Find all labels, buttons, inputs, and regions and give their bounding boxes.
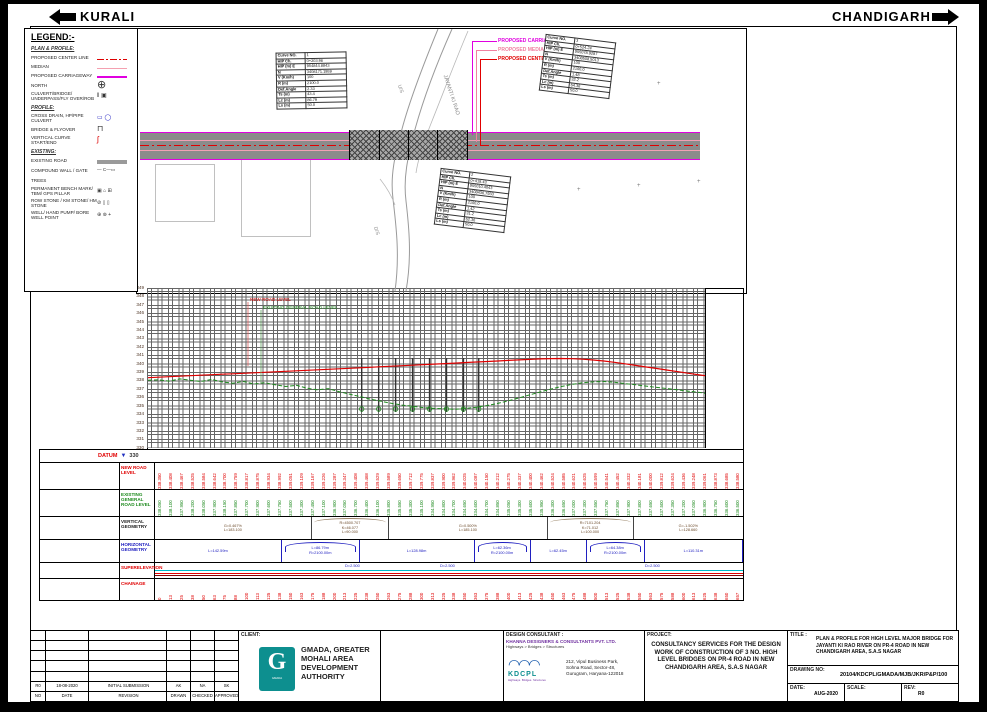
level-value: 339.061 bbox=[700, 463, 711, 489]
vg-label: L=90.000 bbox=[342, 530, 358, 534]
drawing-title-cell: TITLE : PLAN & PROFILE FOR HIGH LEVEL MA… bbox=[788, 631, 958, 666]
level-value: 335.300 bbox=[515, 490, 526, 516]
existing-level-row: EXISTING GENERAL ROAD LEVEL 338.050338.1… bbox=[40, 490, 743, 517]
callout-leader bbox=[472, 41, 497, 42]
level-value: 337.350 bbox=[668, 490, 679, 516]
carriageway-icon bbox=[97, 76, 127, 78]
client-cell: CLIENT: G GMADA GMADA, GREATER MOHALI AR… bbox=[239, 631, 381, 701]
level-value: 340.400 bbox=[526, 463, 537, 489]
superelevation-value: D=2.500 bbox=[645, 563, 660, 568]
level-value: 339.436 bbox=[679, 463, 690, 489]
drawing-no-cell: DRAWING NO: 20104/KDCPL/GMADA/MJB/JKR/P&… bbox=[788, 666, 958, 684]
level-value: 337.650 bbox=[646, 490, 657, 516]
horizontal-geometry-segment: L=62.36m R=2100.00m bbox=[475, 540, 531, 562]
existing-level-values: 338.050338.100337.950338.200338.050337.9… bbox=[155, 490, 743, 516]
crossdrain-icon bbox=[97, 114, 127, 122]
level-value: 340.625 bbox=[580, 463, 591, 489]
legend-section-title: EXISTING: bbox=[31, 149, 137, 155]
callout-proposed-median: PROPOSED MEDIAN bbox=[498, 47, 547, 53]
chainage-value: 375 bbox=[482, 579, 493, 600]
revision-row-r0: R0 18-08-2020 INITIAL SUBMISSION AK NA S… bbox=[31, 682, 238, 692]
level-value: 339.109 bbox=[297, 463, 308, 489]
level-value: 340.025 bbox=[460, 463, 471, 489]
chainage-value: 313 bbox=[428, 579, 439, 600]
level-value: 334.950 bbox=[428, 490, 439, 516]
survey-plus-mark: + bbox=[657, 81, 661, 87]
chainage-value: 113 bbox=[253, 579, 264, 600]
horizontal-geometry-segment: L=128.98m bbox=[360, 540, 475, 562]
level-value: 337.700 bbox=[242, 490, 253, 516]
level-value: 337.950 bbox=[177, 490, 188, 516]
level-value: 339.712 bbox=[406, 463, 417, 489]
rev-value: R0 bbox=[918, 691, 924, 697]
level-value: 339.962 bbox=[449, 463, 460, 489]
bridge-pier-line bbox=[379, 130, 380, 160]
legend-item-label: PROPOSED CARRIAGEWAY bbox=[31, 73, 97, 78]
legend-items: EXISTING ROADCOMPOUND WALL / GATETREESPE… bbox=[25, 157, 137, 220]
legend-item: ROW STONE / KM STONE/ HM STONE bbox=[31, 198, 137, 208]
level-value: 338.817 bbox=[242, 463, 253, 489]
level-value: 335.550 bbox=[395, 490, 406, 516]
curve-data-table-2: Curve NO.2HIP Ch.0+418.43HIP (m) E955010… bbox=[434, 168, 511, 233]
level-value: 335.100 bbox=[417, 490, 428, 516]
client-name: GMADA, GREATER MOHALI AREA DEVELOPMENT A… bbox=[301, 645, 373, 681]
bridge-piers bbox=[359, 358, 480, 412]
arrow-left-icon bbox=[60, 13, 76, 21]
legend-item: VERTICAL CURVE START/END bbox=[31, 135, 137, 145]
level-value: 340.337 bbox=[515, 463, 526, 489]
bridge-pier-line bbox=[408, 130, 409, 160]
legend-item-label: CULVERT/BRIDGE/ UNDERPASS/FLY OVER/ROB bbox=[31, 91, 97, 101]
level-value: 337.600 bbox=[264, 490, 275, 516]
level-value: 340.462 bbox=[537, 463, 548, 489]
chainage-value: 88 bbox=[231, 579, 242, 600]
client-heading: CLIENT: bbox=[241, 632, 380, 638]
vg-label: R=4500.707 bbox=[340, 521, 361, 525]
chainage-value: 625 bbox=[700, 579, 711, 600]
design-consultant-cell: DESIGN CONSULTANT : KHANNA DESIGNERS & C… bbox=[504, 631, 645, 701]
level-value: 334.850 bbox=[493, 490, 504, 516]
level-value: 339.589 bbox=[384, 463, 395, 489]
date-value: AUG-2020 bbox=[814, 691, 838, 697]
vg-label: R=7101.204 bbox=[580, 521, 601, 525]
design-consultant-tagline: Highways > Bridges > Structures bbox=[506, 644, 644, 649]
level-value: 337.450 bbox=[308, 490, 319, 516]
row-label-chainage: CHAINAGE bbox=[119, 579, 155, 600]
vg-label: L=128.660 bbox=[679, 528, 697, 532]
level-value: 338.525 bbox=[188, 463, 199, 489]
median-icon bbox=[97, 68, 127, 69]
datum-row: DATUM ▼ 330 bbox=[40, 450, 743, 463]
vg-label: L=185.100 bbox=[459, 528, 477, 532]
legend-item: MEDIAN bbox=[31, 63, 137, 70]
row-label-superelevation: SUPERELEVATION bbox=[119, 563, 155, 578]
legend-panel: LEGEND:- PLAN & PROFILE: PROPOSED CENTER… bbox=[24, 28, 138, 292]
superelevation-line-red bbox=[155, 573, 743, 574]
chainage-value: 388 bbox=[493, 579, 504, 600]
level-value: 337.850 bbox=[231, 490, 242, 516]
level-value: 339.775 bbox=[417, 463, 428, 489]
stamp-cell bbox=[381, 631, 504, 701]
chainage-value: 188 bbox=[319, 579, 330, 600]
bridge-icon bbox=[97, 125, 127, 133]
level-value: 337.300 bbox=[297, 490, 308, 516]
survey-plus-mark: + bbox=[577, 187, 581, 193]
existing-road-icon bbox=[97, 160, 127, 164]
plan-parcel-outline bbox=[241, 159, 311, 237]
chainage-value: 163 bbox=[297, 579, 308, 600]
horizontal-geometry-segment: L=110.31m bbox=[645, 540, 743, 562]
level-value: 336.900 bbox=[330, 490, 341, 516]
level-value: 339.624 bbox=[668, 463, 679, 489]
legend-title: LEGEND:- bbox=[31, 32, 137, 42]
chainage-value: 425 bbox=[526, 579, 537, 600]
legend-item-label: VERTICAL CURVE START/END bbox=[31, 135, 97, 145]
level-value: 338.050 bbox=[155, 490, 166, 516]
level-value: 337.750 bbox=[602, 490, 613, 516]
legend-item-label: BRIDGE & FLYOVER bbox=[31, 127, 97, 132]
superelevation-line-cyan bbox=[155, 570, 743, 571]
chainage-value: 238 bbox=[362, 579, 373, 600]
bridge-pier-line bbox=[437, 130, 438, 160]
new-road-level-line bbox=[148, 359, 705, 378]
frame-top-line bbox=[30, 26, 957, 27]
chainage-value: 350 bbox=[460, 579, 471, 600]
hg-label: R=2100.00m bbox=[604, 551, 626, 556]
horizontal-geometry-segment: L=142.59m bbox=[155, 540, 282, 562]
date-scale-rev-row: DATE: AUG-2020 SCALE: REV: R0 bbox=[788, 684, 958, 701]
legend-item: PROPOSED CARRIAGEWAY bbox=[31, 72, 137, 79]
level-value: 340.000 bbox=[646, 463, 657, 489]
level-value: 338.700 bbox=[220, 463, 231, 489]
horizontal-geometry-segment: L=62.45m bbox=[531, 540, 587, 562]
level-value: 338.150 bbox=[220, 490, 231, 516]
level-value: 339.529 bbox=[373, 463, 384, 489]
direction-right-label: CHANDIGARH bbox=[832, 9, 931, 24]
chainage-value: 400 bbox=[504, 579, 515, 600]
project-description: CONSULTANCY SERVICES FOR THE DESIGN WORK… bbox=[647, 642, 785, 672]
legend-section: PROFILE: CROSS DRAIN, HP/PIPE CULVERTBRI… bbox=[25, 105, 137, 145]
chainage-value: 463 bbox=[559, 579, 570, 600]
chainage-value: 38 bbox=[188, 579, 199, 600]
design-consultant-address: 212, Vipul Business Park, Sohna Road, Se… bbox=[566, 659, 642, 677]
chainage-value: 657 bbox=[733, 579, 743, 600]
level-value: 337.900 bbox=[624, 490, 635, 516]
chainage-value: 225 bbox=[351, 579, 362, 600]
callout-leader bbox=[480, 59, 497, 60]
date-cell: DATE: AUG-2020 bbox=[788, 684, 845, 701]
level-value: 336.700 bbox=[351, 490, 362, 516]
vertical-geometry-segment: G=-1.502% L=128.660 bbox=[634, 517, 743, 539]
new-road-level-row: NEW ROAD LEVEL 338.350338.408338.467338.… bbox=[40, 463, 743, 490]
chainage-value: 600 bbox=[679, 579, 690, 600]
vertical-geometry-row: VERTICAL GEOMETRY G=0.467% L=183.100 R=4… bbox=[40, 517, 743, 540]
level-value: 335.050 bbox=[504, 490, 515, 516]
chainage-value: 538 bbox=[624, 579, 635, 600]
existing-ground-line bbox=[148, 379, 705, 409]
legend-item-label: ROW STONE / KM STONE/ HM STONE bbox=[31, 198, 97, 208]
centerline-icon bbox=[97, 59, 127, 60]
project-heading: PROJECT: bbox=[647, 632, 787, 638]
legend-item: COMPOUND WALL / GATE bbox=[31, 166, 137, 174]
legend-item: WELL/ HAND PUMP/ BORE WELL POINT bbox=[31, 210, 137, 220]
level-value: 340.212 bbox=[493, 463, 504, 489]
level-value: 340.524 bbox=[548, 463, 559, 489]
level-value: 338.580 bbox=[733, 463, 743, 489]
superelevation-value: D=2.500 bbox=[345, 563, 360, 568]
level-value: 340.150 bbox=[482, 463, 493, 489]
level-value: 340.599 bbox=[591, 463, 602, 489]
legend-item: PROPOSED CENTER LINE bbox=[31, 54, 137, 61]
chainage-row: CHAINAGE 0132538506375881001131251381501… bbox=[40, 579, 743, 600]
chainage-value: 25 bbox=[177, 579, 188, 600]
vg-label: L=183.100 bbox=[224, 528, 242, 532]
legend-section-title: PLAN & PROFILE: bbox=[31, 46, 137, 52]
revision-table: R0 18-08-2020 INITIAL SUBMISSION AK NA S… bbox=[31, 631, 239, 701]
legend-item-label: NORTH bbox=[31, 83, 97, 88]
level-value: 340.621 bbox=[569, 463, 580, 489]
level-value: 338.875 bbox=[253, 463, 264, 489]
hg-label: L=62.45m bbox=[549, 549, 566, 554]
arrow-right-icon bbox=[932, 13, 948, 21]
level-value: 337.300 bbox=[580, 490, 591, 516]
title-block: R0 18-08-2020 INITIAL SUBMISSION AK NA S… bbox=[30, 630, 959, 702]
profile-plot bbox=[140, 288, 750, 448]
horizontal-geometry-segment: L=86.79m R=2100.00m bbox=[282, 540, 360, 562]
level-value: 334.650 bbox=[460, 490, 471, 516]
legend-item: TREES bbox=[31, 176, 137, 184]
level-value: 339.347 bbox=[340, 463, 351, 489]
legend-item: PERMANENT BENCH MARK/ TBM/ GPS PILLAR bbox=[31, 186, 137, 196]
vg-label: L=100.000 bbox=[581, 530, 599, 534]
level-value: 338.050 bbox=[199, 490, 210, 516]
legend-section: EXISTING: EXISTING ROADCOMPOUND WALL / G… bbox=[25, 149, 137, 220]
vertical-geometry-segment: G=0.467% L=183.100 bbox=[155, 517, 311, 539]
chainage-value: 288 bbox=[406, 579, 417, 600]
survey-plus-mark: + bbox=[697, 179, 701, 185]
level-value: 334.800 bbox=[439, 490, 450, 516]
level-value: 339.051 bbox=[286, 463, 297, 489]
chainage-value: 63 bbox=[210, 579, 221, 600]
superelevation-value: D=2.500 bbox=[440, 563, 455, 568]
level-value: 338.350 bbox=[155, 463, 166, 489]
chainage-value: 575 bbox=[657, 579, 668, 600]
chainage-value: 488 bbox=[580, 579, 591, 600]
level-value: 336.100 bbox=[373, 490, 384, 516]
curve-data-table-1: Curve NO.1HIP Ch.0+203.96HIP (m) E954844… bbox=[276, 51, 348, 109]
level-value: 336.400 bbox=[362, 490, 373, 516]
chainage-value: 550 bbox=[635, 579, 646, 600]
chainage-value: 213 bbox=[340, 579, 351, 600]
project-cell: PROJECT: CONSULTANCY SERVICES FOR THE DE… bbox=[645, 631, 788, 701]
chainage-value: 138 bbox=[275, 579, 286, 600]
design-consultant-heading: DESIGN CONSULTANT : bbox=[506, 632, 644, 638]
legend-item-label: COMPOUND WALL / GATE bbox=[31, 168, 97, 173]
pbm-icon bbox=[97, 187, 127, 195]
level-value: 339.812 bbox=[657, 463, 668, 489]
bridge-deck-hatch bbox=[349, 130, 468, 160]
chainage-value: 0 bbox=[155, 579, 166, 600]
level-value: 338.584 bbox=[199, 463, 210, 489]
level-value: 339.408 bbox=[351, 463, 362, 489]
level-value: 337.750 bbox=[275, 490, 286, 516]
well-icon bbox=[97, 211, 127, 219]
level-value: 336.750 bbox=[711, 490, 722, 516]
callout-leader bbox=[476, 50, 477, 142]
legend-item-label: PROPOSED CENTER LINE bbox=[31, 55, 97, 60]
profile-bands-table: DATUM ▼ 330 NEW ROAD LEVEL 338.350338.40… bbox=[39, 449, 744, 601]
legend-section: PLAN & PROFILE: PROPOSED CENTER LINEMEDI… bbox=[25, 46, 137, 101]
level-value: 334.700 bbox=[482, 490, 493, 516]
drawing-title: PLAN & PROFILE FOR HIGH LEVEL MAJOR BRID… bbox=[816, 636, 956, 656]
chainage-value: 638 bbox=[711, 579, 722, 600]
level-value: 338.685 bbox=[722, 463, 733, 489]
level-value: 337.200 bbox=[679, 490, 690, 516]
vertical-geometry-segment: R=7101.204 K=71.012 L=100.000 bbox=[547, 517, 634, 539]
superelevation-line-maroon bbox=[155, 575, 743, 576]
callout-leader bbox=[476, 50, 497, 51]
legend-items: CROSS DRAIN, HP/PIPE CULVERTBRIDGE & FLY… bbox=[25, 113, 137, 145]
superelevation-diagram: D=2.500 D=2.500 D=2.500 bbox=[155, 563, 743, 578]
chainage-value: 588 bbox=[668, 579, 679, 600]
level-value: 340.181 bbox=[635, 463, 646, 489]
title-column: TITLE : PLAN & PROFILE FOR HIGH LEVEL MA… bbox=[788, 631, 958, 701]
chainage-value: 413 bbox=[515, 579, 526, 600]
horizontal-geometry-diagram: L=142.59m L=86.79m R=2100.00m L=128.98m bbox=[155, 540, 743, 562]
chainage-value: 200 bbox=[330, 579, 341, 600]
chainage-value: 450 bbox=[548, 579, 559, 600]
chainage-value: 525 bbox=[613, 579, 624, 600]
rowstone-icon bbox=[97, 199, 127, 207]
drawing-sheet-page: KURALI CHANDIGARH LEGEND:- PLAN & PROFIL… bbox=[0, 0, 987, 712]
legend-items: PROPOSED CENTER LINEMEDIANPROPOSED CARRI… bbox=[25, 54, 137, 101]
chainage-value: 275 bbox=[395, 579, 406, 600]
chainage-value: 125 bbox=[264, 579, 275, 600]
level-value: 334.600 bbox=[471, 490, 482, 516]
north-icon bbox=[97, 81, 127, 89]
chainage-value: 650 bbox=[722, 579, 733, 600]
level-value: 337.550 bbox=[591, 490, 602, 516]
level-value: 336.900 bbox=[700, 490, 711, 516]
level-value: 340.541 bbox=[602, 463, 613, 489]
new-road-level-values: 338.350338.408338.467338.525338.584338.6… bbox=[155, 463, 743, 489]
wall-icon bbox=[97, 166, 127, 174]
level-value: 340.332 bbox=[624, 463, 635, 489]
datum-label: DATUM bbox=[98, 453, 117, 459]
revision-header-row: NO DATE REVISION DRAWN CHECKED APPROVED bbox=[31, 692, 238, 701]
vc-icon bbox=[97, 136, 127, 144]
level-value: 339.468 bbox=[362, 463, 373, 489]
level-value: 337.900 bbox=[210, 490, 221, 516]
level-value: 337.800 bbox=[635, 490, 646, 516]
level-value: 334.700 bbox=[449, 490, 460, 516]
chainage-value: 300 bbox=[417, 579, 428, 600]
chainage-value: 50 bbox=[199, 579, 210, 600]
level-value: 337.850 bbox=[613, 490, 624, 516]
level-value: 337.050 bbox=[689, 490, 700, 516]
rev-cell: REV: R0 bbox=[902, 684, 958, 701]
profile-new-road-label: NEW ROAD LEVEL bbox=[250, 297, 291, 302]
level-value: 340.585 bbox=[559, 463, 570, 489]
legend-item-label: MEDIAN bbox=[31, 64, 97, 69]
datum-triangle-icon: ▼ bbox=[120, 453, 126, 459]
plan-parcel-outline bbox=[155, 164, 215, 222]
level-value: 339.650 bbox=[395, 463, 406, 489]
chainage-value: 100 bbox=[242, 579, 253, 600]
row-label-new-road: NEW ROAD LEVEL bbox=[119, 463, 155, 489]
kdcpl-logo: ◠◠◠ KDCPL Highways· Bridges· Structures bbox=[508, 657, 560, 687]
legend-item: BRIDGE & FLYOVER bbox=[31, 125, 137, 133]
vertical-geometry-diagram: G=0.467% L=183.100 R=4500.707 K=46.077 L… bbox=[155, 517, 743, 539]
level-value: 338.759 bbox=[231, 463, 242, 489]
drawing-no-value: 20104/KDCPL/GMADA/MJB/JKR/P&P/100 bbox=[840, 672, 947, 678]
culvert-icon bbox=[97, 92, 127, 100]
level-value: 336.300 bbox=[548, 490, 559, 516]
level-value: 338.992 bbox=[275, 463, 286, 489]
chainage-value: 338 bbox=[449, 579, 460, 600]
chainage-value: 513 bbox=[602, 579, 613, 600]
level-value: 337.050 bbox=[340, 490, 351, 516]
row-label-existing: EXISTING GENERAL ROAD LEVEL bbox=[119, 490, 155, 516]
horizontal-geometry-segment: L=64.38m R=2100.00m bbox=[587, 540, 645, 562]
level-value: 338.200 bbox=[188, 490, 199, 516]
level-value: 338.873 bbox=[711, 463, 722, 489]
legend-item: CROSS DRAIN, HP/PIPE CULVERT bbox=[31, 113, 137, 123]
level-value: 335.800 bbox=[384, 490, 395, 516]
scale-cell: SCALE: bbox=[845, 684, 902, 701]
trees-icon bbox=[97, 176, 127, 184]
level-value: 337.500 bbox=[286, 490, 297, 516]
chainage-value: 150 bbox=[286, 579, 297, 600]
horizontal-geometry-row: HORIZONTAL GEOMETRY L=142.59m L=86.79m R… bbox=[40, 540, 743, 563]
chainage-value: 325 bbox=[439, 579, 450, 600]
chainage-value: 438 bbox=[537, 579, 548, 600]
level-value: 338.642 bbox=[210, 463, 221, 489]
chainage-value: 475 bbox=[569, 579, 580, 600]
row-label-horizontal-geometry: HORIZONTAL GEOMETRY bbox=[119, 540, 155, 562]
hg-label: L=142.59m bbox=[208, 549, 228, 554]
level-value: 336.500 bbox=[733, 490, 743, 516]
callout-leader bbox=[480, 59, 481, 146]
level-value: 339.287 bbox=[330, 463, 341, 489]
hg-label: R=2100.00m bbox=[309, 551, 331, 556]
datum-value: 330 bbox=[129, 453, 138, 459]
level-value: 340.275 bbox=[504, 463, 515, 489]
legend-item-label: TREES bbox=[31, 178, 97, 183]
chainage-value: 263 bbox=[384, 579, 395, 600]
legend-item-label: EXISTING ROAD bbox=[31, 158, 97, 163]
legend-item-label: WELL/ HAND PUMP/ BORE WELL POINT bbox=[31, 210, 97, 220]
legend-item-label: CROSS DRAIN, HP/PIPE CULVERT bbox=[31, 113, 97, 123]
level-value: 336.600 bbox=[722, 490, 733, 516]
level-value: 338.408 bbox=[166, 463, 177, 489]
level-value: 335.300 bbox=[406, 490, 417, 516]
level-value: 338.100 bbox=[166, 490, 177, 516]
legend-sections: PLAN & PROFILE: PROPOSED CENTER LINEMEDI… bbox=[25, 46, 137, 220]
hg-label: R=2100.00m bbox=[491, 551, 513, 556]
level-value: 336.650 bbox=[559, 490, 570, 516]
level-value: 338.934 bbox=[264, 463, 275, 489]
level-value: 340.452 bbox=[613, 463, 624, 489]
level-value: 337.000 bbox=[569, 490, 580, 516]
legend-item: CULVERT/BRIDGE/ UNDERPASS/FLY OVER/ROB bbox=[31, 91, 137, 101]
level-value: 340.087 bbox=[471, 463, 482, 489]
chainage-value: 500 bbox=[591, 579, 602, 600]
level-value: 335.600 bbox=[526, 490, 537, 516]
profile-existing-label: EXISTING GENERAL ROAD LEVEL bbox=[263, 305, 338, 310]
vertical-geometry-segment: R=4500.707 K=46.077 L=90.000 bbox=[311, 517, 390, 539]
legend-item: EXISTING ROAD bbox=[31, 157, 137, 164]
